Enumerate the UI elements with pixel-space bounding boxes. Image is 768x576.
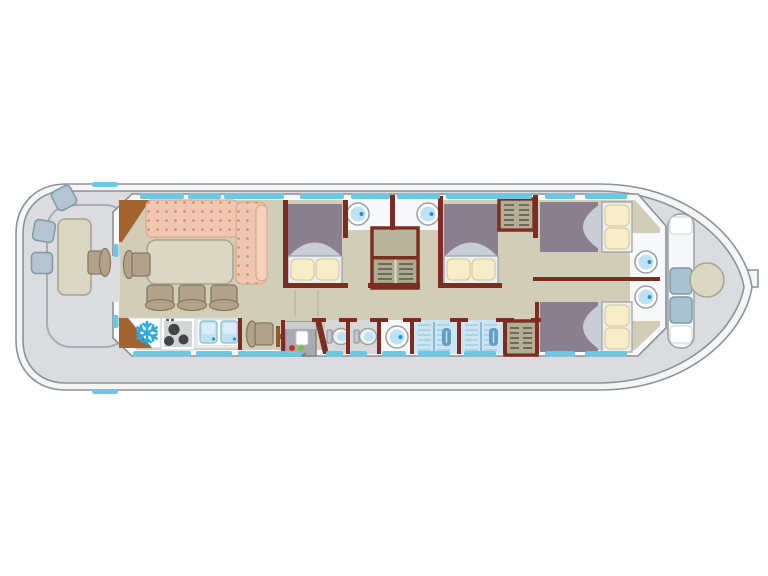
dining-chair <box>210 285 239 311</box>
saloon-door-opening <box>112 256 120 302</box>
deck-stool <box>32 253 53 274</box>
dining-chair <box>124 251 151 279</box>
helm-seat <box>88 249 111 277</box>
dining-chair <box>146 285 175 311</box>
double-bed <box>444 204 498 284</box>
shower-cubicle <box>414 320 457 354</box>
wardrobe <box>499 199 534 230</box>
stove-burner <box>168 324 179 335</box>
galley-sink <box>197 319 240 346</box>
washbasin <box>386 326 408 348</box>
bow-bench-pad <box>670 217 692 234</box>
double-bed <box>540 302 632 352</box>
double-bed <box>540 202 632 252</box>
red-indicator <box>289 345 295 351</box>
bow-bench-pad <box>670 326 692 343</box>
washbasin <box>635 286 657 308</box>
cabin-bow-port <box>540 202 632 252</box>
aft-deck-table <box>58 219 91 295</box>
deck-stool <box>32 219 56 243</box>
washbasin <box>347 203 369 225</box>
bow-bench-cushion <box>670 297 692 323</box>
boat-deck-plan <box>0 0 768 576</box>
double-bed <box>288 204 342 284</box>
nav-seat <box>247 321 274 347</box>
sofa-bolster <box>256 205 267 281</box>
stove <box>161 318 195 350</box>
wardrobe <box>505 321 537 355</box>
stove-burner <box>179 335 189 345</box>
stove-burner <box>164 336 174 346</box>
washing-machine <box>285 322 316 356</box>
central-cupboard <box>372 228 418 288</box>
bow-table <box>690 263 724 297</box>
shower-cubicle <box>461 320 504 354</box>
bow-bench-cushion <box>670 268 692 294</box>
toilet <box>354 329 377 345</box>
boarding-gate <box>92 389 118 394</box>
cabin-bow-starboard <box>540 302 632 352</box>
washbasin <box>635 251 657 273</box>
washbasin <box>417 203 439 225</box>
dining-table <box>147 240 233 284</box>
cabin-aft <box>288 204 342 284</box>
boarding-gate <box>92 182 118 187</box>
plan-canvas <box>0 0 768 576</box>
dining-chair <box>178 285 207 311</box>
green-indicator <box>298 345 304 351</box>
